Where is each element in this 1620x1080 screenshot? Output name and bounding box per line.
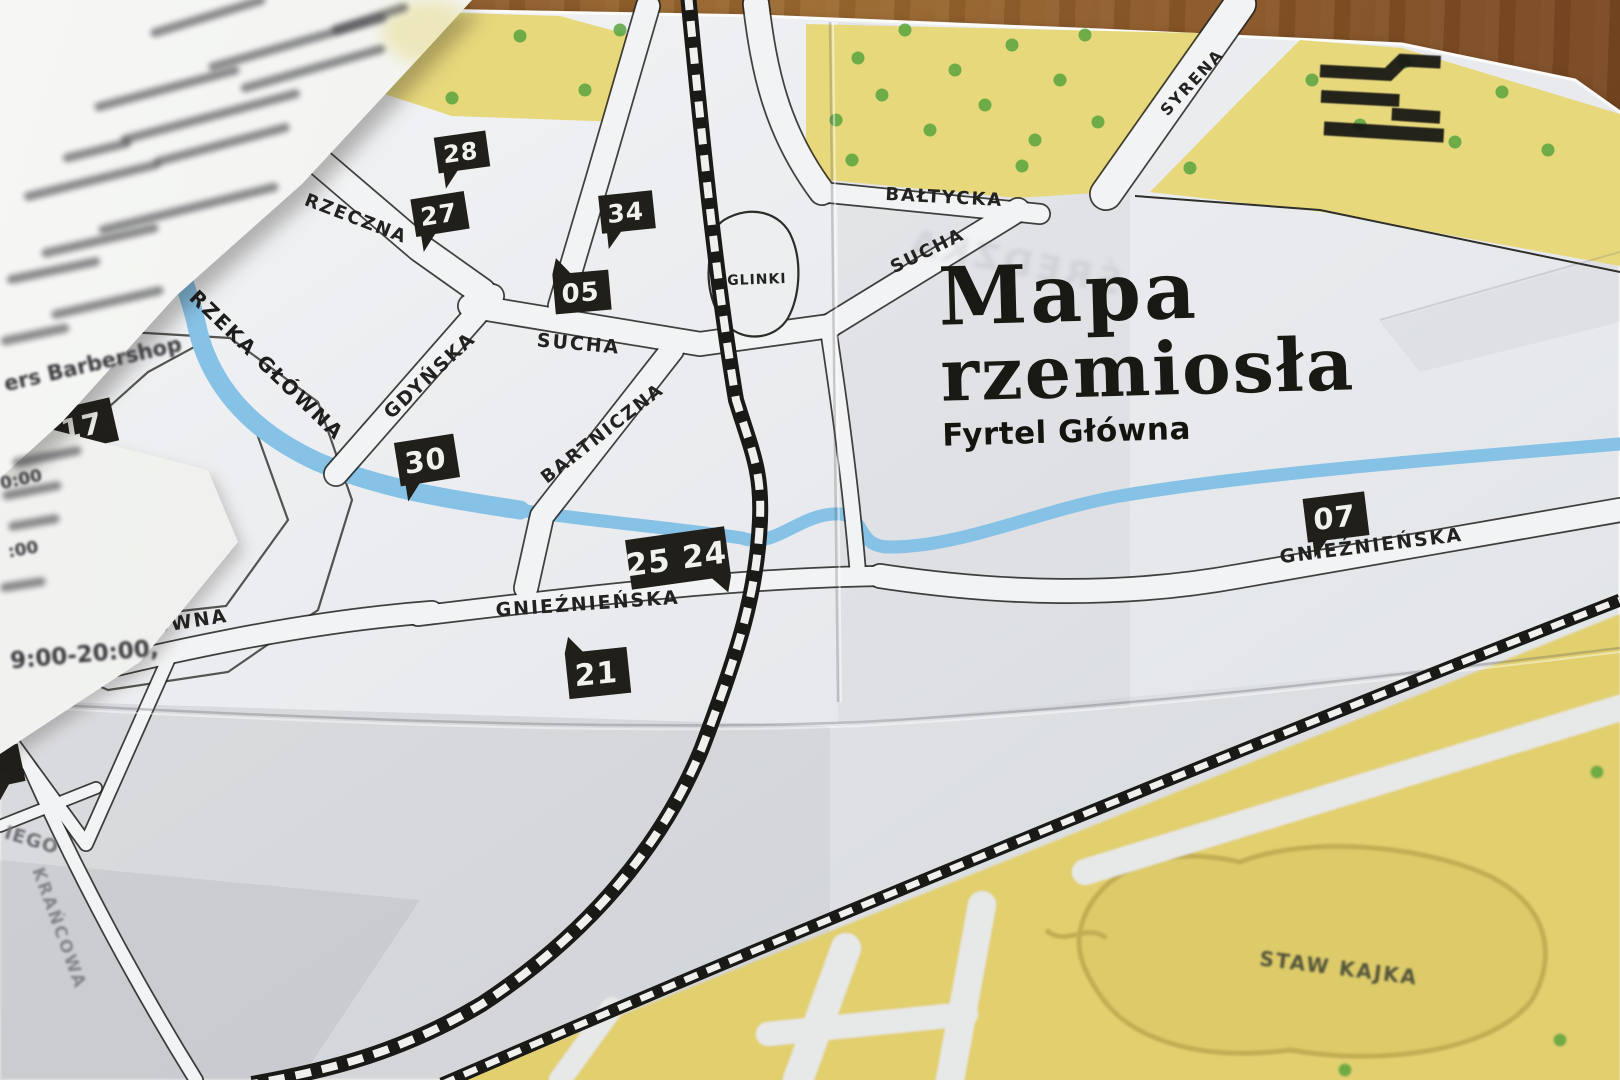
tree-dot (876, 89, 889, 102)
tree-dot (614, 24, 627, 37)
tree-dot (1184, 162, 1197, 175)
tree-dot (1554, 1034, 1567, 1047)
fyrtel-brand-logo-icon (1316, 48, 1461, 145)
map-artwork: SKROMNARZECZNASUCHAGDYŃSKABARTNICZNABAŁT… (0, 0, 1620, 1080)
tree-dot (1306, 74, 1319, 87)
tree-dot (979, 99, 992, 112)
marker-number: 05 (561, 277, 600, 310)
tree-dot (1006, 39, 1019, 52)
marker-number: 21 (574, 655, 619, 695)
tree-dot (1496, 86, 1509, 99)
tree-dot (846, 154, 859, 167)
tree-dot (1591, 766, 1604, 779)
tree-dot (852, 52, 865, 65)
tree-dot (1092, 116, 1105, 129)
tree-dot (294, 22, 307, 35)
tree-dot (1054, 74, 1067, 87)
marker-number: 28 (442, 136, 479, 169)
tree-dot (342, 82, 355, 95)
tree-dot (579, 84, 592, 97)
tree-dot (899, 24, 912, 37)
tree-dot (1016, 160, 1029, 173)
pond-staw-kajka (1079, 846, 1545, 1056)
marker-number: 34 (607, 196, 645, 229)
marker-number: 07 (1313, 498, 1357, 537)
marker-number: 30 (403, 440, 448, 481)
map-title-line2: rzemiosła (940, 326, 1356, 414)
tree-dot (446, 92, 459, 105)
tree-dot (389, 49, 402, 62)
tree-dot (1339, 1064, 1352, 1077)
street-label-glinki: GLINKI (727, 271, 787, 289)
tree-dot (924, 124, 937, 137)
tree-dot (1079, 29, 1092, 42)
map-title-block: Mapa rzemiosła Fyrtel Główna (937, 244, 1357, 453)
tree-dot (514, 30, 527, 43)
tree-dot (949, 64, 962, 77)
tree-dot (1029, 134, 1042, 147)
photographed-paper-map: SKROMNARZECZNASUCHAGDYŃSKABARTNICZNABAŁT… (0, 0, 1620, 1080)
marker-number: 27 (419, 197, 458, 232)
tree-dot (1542, 144, 1555, 157)
